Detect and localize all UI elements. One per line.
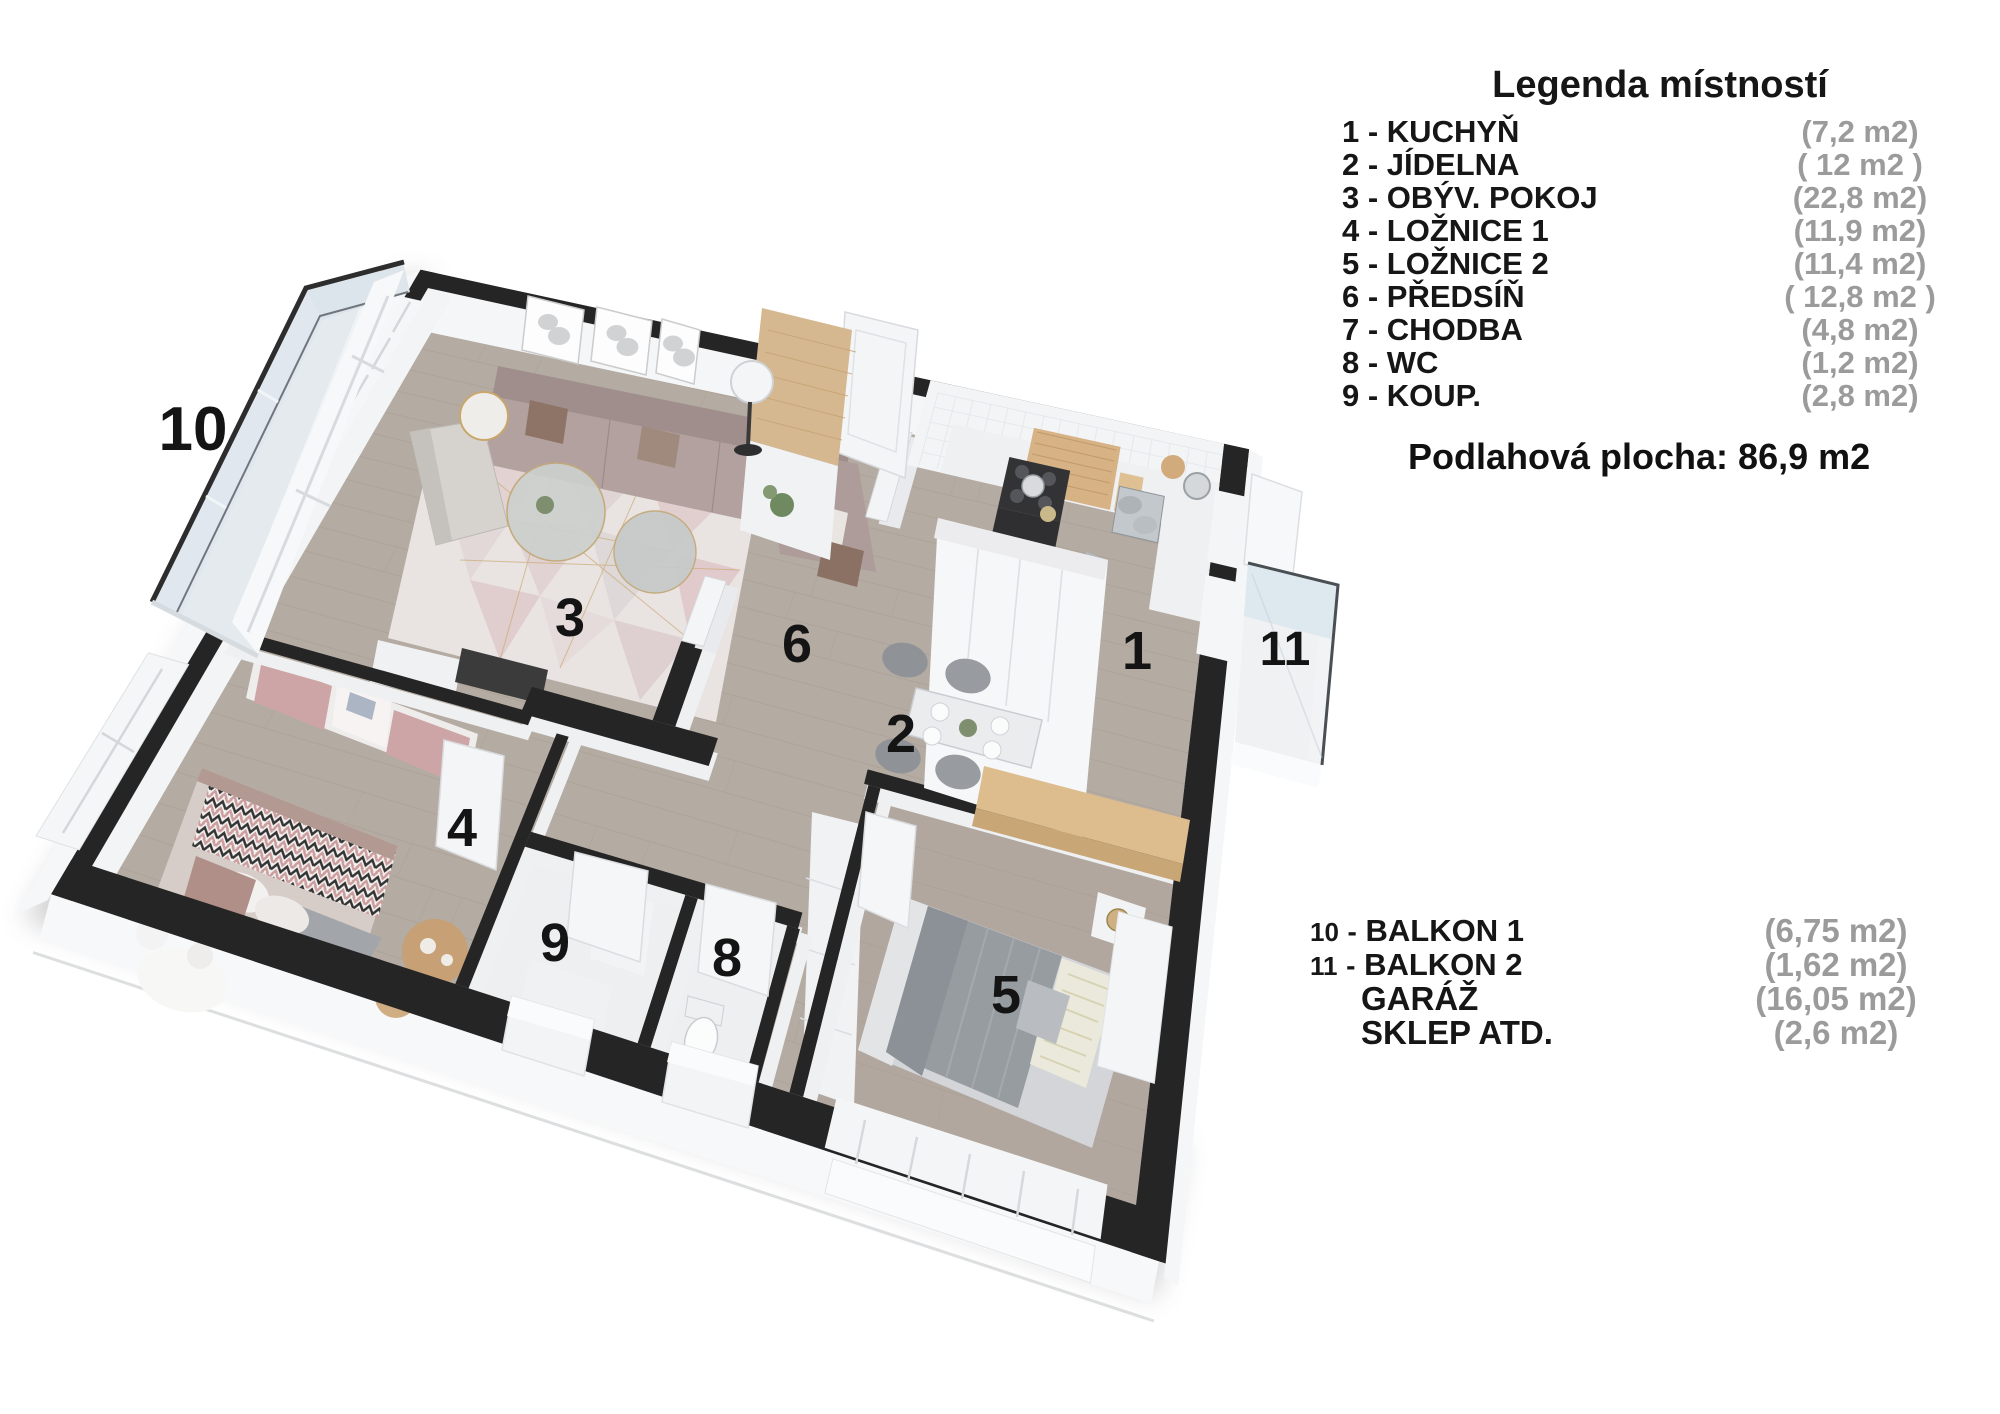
svg-text:11: 11 [1260,623,1311,676]
svg-text:4: 4 [447,798,477,858]
svg-text:3: 3 [555,588,585,648]
svg-text:10: 10 [159,395,228,464]
svg-text:6: 6 [782,614,812,674]
svg-text:1: 1 [1122,621,1152,681]
svg-text:8: 8 [712,928,742,988]
svg-text:9: 9 [540,913,570,973]
svg-text:5: 5 [991,965,1021,1025]
svg-text:2: 2 [886,704,916,764]
